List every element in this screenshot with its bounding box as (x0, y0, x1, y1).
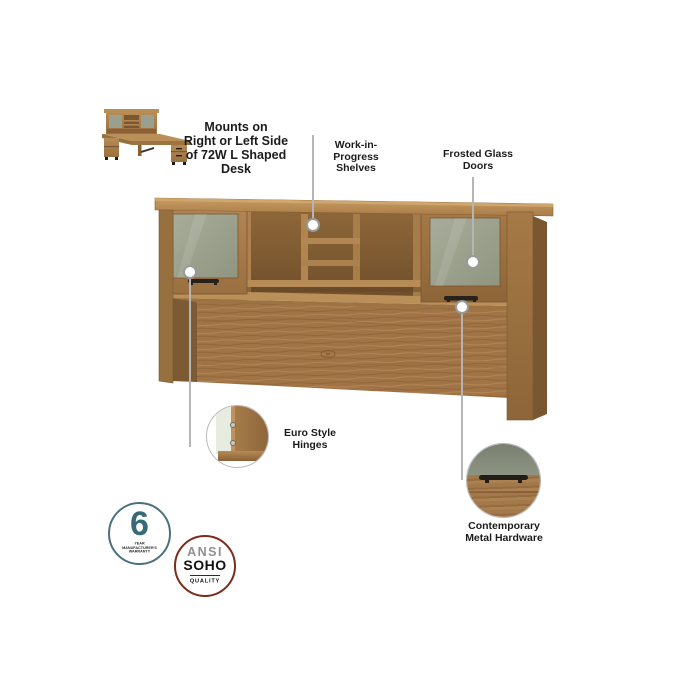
soho-text: SOHO (176, 558, 234, 572)
product-infographic: Mounts on Right or Left Side of 72W L Sh… (0, 0, 700, 700)
hinge-inset-door-edge (231, 405, 235, 454)
ansi-soho-quality-badge: ANSI SOHO QUALITY (174, 535, 236, 597)
wip-shelves-callout-marker (306, 218, 320, 232)
badge-divider (190, 575, 220, 577)
metal-hardware-callout-line (461, 314, 463, 480)
euro-hinges-callout-marker (183, 265, 197, 279)
hinge-inset-glass (216, 406, 232, 454)
wip-shelves-label: Work-in- Progress Shelves (314, 140, 398, 175)
hardware-inset-wood (467, 475, 540, 517)
handle-post (485, 480, 489, 484)
l-shaped-desk-thumbnail (98, 106, 194, 170)
metal-hardware-label: Contemporary Metal Hardware (456, 521, 552, 544)
hinge-icon (230, 440, 236, 446)
quality-text: QUALITY (182, 579, 228, 585)
euro-hinges-callout-line (189, 279, 191, 447)
frosted-glass-callout-marker (466, 255, 480, 269)
euro-hinges-zoom-inset (206, 405, 269, 468)
mounting-note: Mounts on Right or Left Side of 72W L Sh… (182, 120, 290, 176)
euro-hinges-label: Euro Style Hinges (268, 428, 352, 451)
hinge-inset-door (231, 405, 269, 454)
hinge-inset-shelf (218, 451, 269, 461)
frosted-glass-label: Frosted Glass Doors (432, 149, 524, 172)
hardware-inset-groove (467, 491, 540, 493)
hardware-inset-glass (467, 444, 540, 475)
hinge-icon (230, 422, 236, 428)
frosted-glass-callout-line (472, 177, 474, 255)
hutch-illustration (143, 192, 567, 432)
metal-hardware-callout-marker (455, 300, 469, 314)
warranty-badge-label: YEAR MANUFACTURER'S WARRANTY (121, 542, 158, 554)
warranty-years: 6 (110, 507, 169, 541)
metal-hardware-zoom-inset (466, 443, 541, 518)
handle-post (518, 480, 522, 484)
warranty-badge: 6 YEAR MANUFACTURER'S WARRANTY (108, 502, 171, 565)
